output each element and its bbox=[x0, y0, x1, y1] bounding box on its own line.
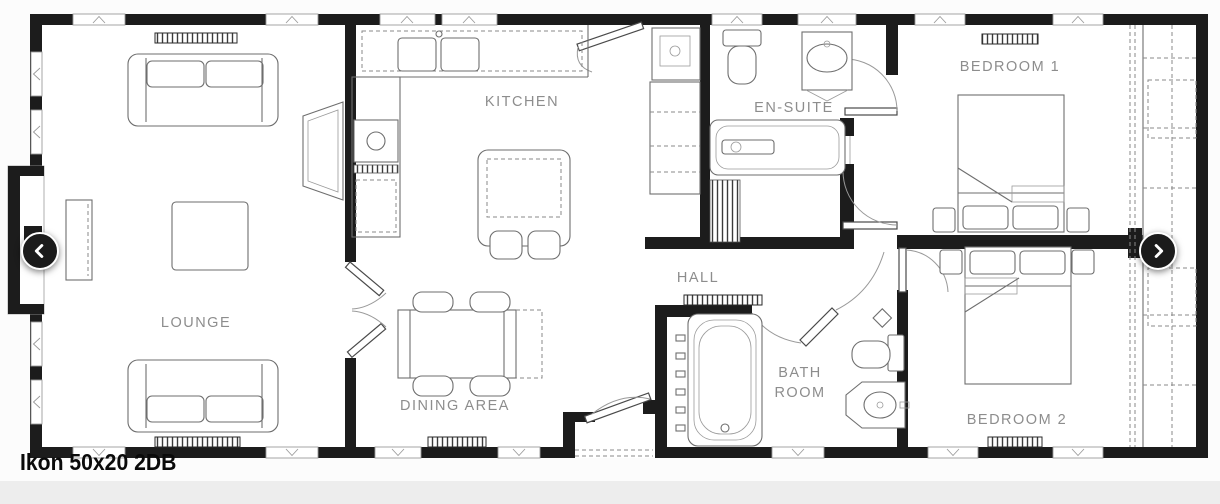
floorplan-carousel-stage: LOUNGE KITCHEN DINING AREA HALL EN-SUITE… bbox=[0, 0, 1220, 504]
bed bbox=[958, 95, 1064, 232]
stool bbox=[528, 231, 560, 259]
bath bbox=[676, 314, 762, 446]
radiator bbox=[982, 34, 1038, 44]
hall-label: HALL bbox=[677, 270, 719, 286]
kitchen-label: KITCHEN bbox=[485, 94, 559, 110]
nightstand bbox=[940, 250, 962, 274]
carousel-next-button[interactable] bbox=[1139, 232, 1177, 270]
hearth bbox=[66, 200, 92, 280]
hall-area bbox=[684, 295, 762, 305]
kitchen-island bbox=[478, 150, 570, 259]
pillow bbox=[1013, 206, 1058, 229]
pillow bbox=[963, 206, 1008, 229]
chair bbox=[413, 292, 453, 312]
pillow bbox=[1020, 251, 1065, 274]
sink-bowl bbox=[398, 38, 436, 71]
chevron-right-icon bbox=[1147, 240, 1169, 262]
bedroom2-label: BEDROOM 2 bbox=[967, 412, 1068, 428]
hob bbox=[354, 120, 398, 162]
chair bbox=[470, 292, 510, 312]
radiator bbox=[155, 437, 240, 447]
stool bbox=[490, 231, 522, 259]
ensuite-bath bbox=[710, 120, 845, 175]
basin bbox=[846, 382, 909, 428]
lounge-label: LOUNGE bbox=[161, 315, 231, 331]
chair bbox=[470, 376, 510, 396]
nightstand bbox=[933, 208, 955, 232]
sink-bowl bbox=[441, 38, 479, 71]
sofa bbox=[128, 360, 278, 432]
floorplan-svg: LOUNGE KITCHEN DINING AREA HALL EN-SUITE… bbox=[0, 0, 1220, 504]
sofa bbox=[128, 54, 278, 126]
ensuite-label: EN-SUITE bbox=[754, 100, 834, 116]
shelving bbox=[710, 180, 740, 242]
carousel-prev-button[interactable] bbox=[21, 232, 59, 270]
bathroom-label-line2: ROOM bbox=[774, 385, 825, 401]
radiator bbox=[155, 33, 237, 43]
toilet bbox=[723, 30, 761, 84]
bed bbox=[965, 247, 1071, 384]
bedroom1-label: BEDROOM 1 bbox=[960, 59, 1061, 75]
radiator bbox=[428, 437, 486, 447]
nightstand bbox=[1067, 208, 1089, 232]
bathroom-label-line1: BATH bbox=[778, 365, 822, 381]
plan-title: Ikon 50x20 2DB bbox=[20, 449, 176, 476]
fireplace-tv-unit bbox=[303, 102, 343, 200]
footer-band bbox=[0, 481, 1220, 504]
radiator bbox=[988, 437, 1042, 447]
radiator bbox=[684, 295, 762, 305]
chevron-left-icon bbox=[29, 240, 51, 262]
dining-label: DINING AREA bbox=[400, 398, 510, 414]
chair bbox=[413, 376, 453, 396]
coffee-table bbox=[172, 202, 248, 270]
nightstand bbox=[1072, 250, 1094, 274]
pillow bbox=[970, 251, 1015, 274]
